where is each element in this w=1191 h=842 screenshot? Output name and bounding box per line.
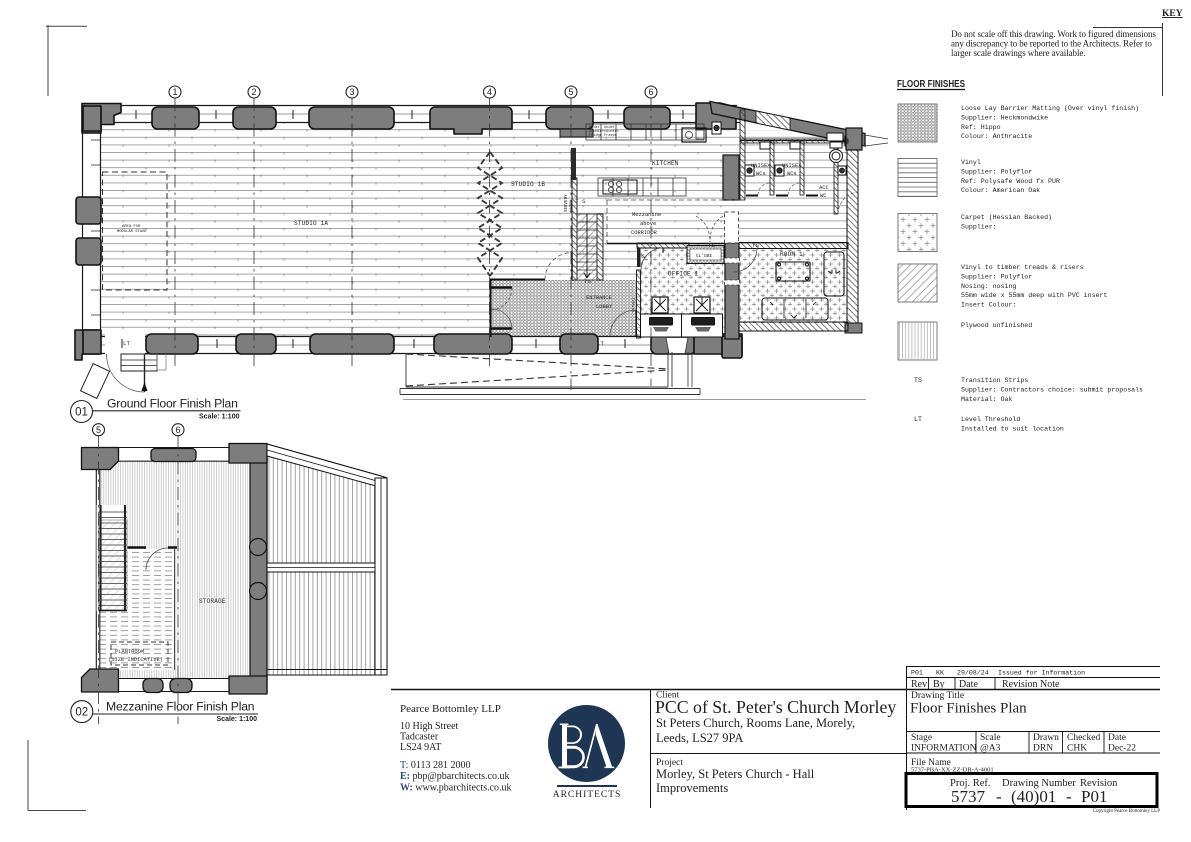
svg-text:5737: 5737 xyxy=(951,787,986,806)
svg-text:Supplier: Heckmondwike: Supplier: Heckmondwike xyxy=(961,114,1048,121)
svg-text:02: 02 xyxy=(75,707,88,719)
svg-text:Installed to suit location: Installed to suit location xyxy=(961,425,1064,432)
svg-text:Drawn: Drawn xyxy=(1033,733,1059,743)
svg-text:ENTRANCE: ENTRANCE xyxy=(586,295,612,301)
svg-text:Morley, St Peters Church - Hal: Morley, St Peters Church - Hall xyxy=(656,767,815,781)
svg-text:ACC: ACC xyxy=(819,185,829,191)
svg-text:Dec-22: Dec-22 xyxy=(1108,744,1136,754)
svg-text:WCs: WCs xyxy=(787,171,797,177)
svg-text:Rev: Rev xyxy=(911,679,927,690)
svg-text:Material: Oak: Material: Oak xyxy=(961,396,1012,403)
svg-text:5: 5 xyxy=(96,425,101,435)
svg-text:Supplier: Polyflor: Supplier: Polyflor xyxy=(961,273,1032,280)
svg-text:FLOOR FINISHES: FLOOR FINISHES xyxy=(897,78,965,90)
svg-text:STORAGE: STORAGE xyxy=(199,598,226,605)
svg-text:LS24 9AT: LS24 9AT xyxy=(400,742,441,753)
svg-text:CL'DBE: CL'DBE xyxy=(696,253,713,259)
svg-text:ARCHITECTS: ARCHITECTS xyxy=(553,790,622,800)
svg-text:Loose Lay Barrier Matting (Ove: Loose Lay Barrier Matting (Over vinyl fi… xyxy=(961,105,1139,112)
svg-text:TS: TS xyxy=(708,242,715,249)
svg-text:29/08/24: 29/08/24 xyxy=(957,670,989,677)
svg-text:UNISEX: UNISEX xyxy=(751,163,771,169)
svg-text:Revision Note: Revision Note xyxy=(1002,679,1060,690)
svg-text:WCs: WCs xyxy=(756,171,766,177)
svg-text:Scale: 1:100: Scale: 1:100 xyxy=(199,414,240,421)
svg-text:Checked: Checked xyxy=(1067,733,1100,743)
svg-text:LT: LT xyxy=(914,416,922,423)
svg-text:STUDIO 1A: STUDIO 1A xyxy=(294,220,328,227)
svg-text:STUDIO 1B: STUDIO 1B xyxy=(511,181,545,188)
svg-text:-: - xyxy=(996,787,1002,806)
svg-text:1: 1 xyxy=(172,87,177,97)
svg-text:-: - xyxy=(1066,787,1072,806)
svg-text:Supplier: Contractors choice:: Supplier: Contractors choice: submit pro… xyxy=(961,386,1143,393)
svg-text:Nosing: nosing: Nosing: nosing xyxy=(961,283,1016,290)
svg-text:Vinyl to timber treads & riser: Vinyl to timber treads & risers xyxy=(961,264,1084,271)
svg-text:TS: TS xyxy=(584,278,591,285)
svg-text:01: 01 xyxy=(75,407,88,419)
svg-text:10 High Street: 10 High Street xyxy=(400,721,459,732)
svg-text:UNISEX: UNISEX xyxy=(782,163,802,169)
svg-text:Date: Date xyxy=(959,679,978,690)
svg-text:ROOM 1: ROOM 1 xyxy=(780,251,803,258)
svg-text:T: 0113 281 2000: T: 0113 281 2000 xyxy=(400,760,471,771)
svg-text:55mm wide x 55mm deep with PVC: 55mm wide x 55mm deep with PVC insert xyxy=(961,292,1107,299)
svg-text:(40)01: (40)01 xyxy=(1011,787,1056,806)
svg-text:P01: P01 xyxy=(1081,787,1107,806)
svg-text:Scale: 1:100: Scale: 1:100 xyxy=(217,716,258,723)
svg-text:T S: T S xyxy=(575,198,586,205)
svg-text:Date: Date xyxy=(1108,733,1126,743)
svg-text:DRN: DRN xyxy=(1033,744,1053,754)
svg-text:Freeze: Freeze xyxy=(604,133,617,138)
svg-text:Colour: American Oak: Colour: American Oak xyxy=(961,187,1040,194)
svg-text:CHK: CHK xyxy=(1067,744,1087,754)
svg-text:PCC of St. Peter's Church Morl: PCC of St. Peter's Church Morley xyxy=(655,697,896,717)
svg-text:SERVERY: SERVERY xyxy=(565,194,569,212)
svg-text:larger scale drawings where av: larger scale drawings where available. xyxy=(951,48,1085,58)
svg-text:Improvements: Improvements xyxy=(656,781,728,795)
svg-text:Fridge: Fridge xyxy=(589,133,602,138)
svg-text:OFFICE 1: OFFICE 1 xyxy=(668,271,699,278)
svg-text:(SIZE INDICATIVE): (SIZE INDICATIVE) xyxy=(108,657,163,663)
svg-text:6: 6 xyxy=(648,87,653,97)
svg-text:5: 5 xyxy=(568,87,573,97)
svg-text:PLANTROOM: PLANTROOM xyxy=(115,649,144,655)
svg-text:CORRIDOR: CORRIDOR xyxy=(631,230,658,236)
svg-text:KK: KK xyxy=(936,670,944,677)
svg-text:TS: TS xyxy=(914,377,922,384)
svg-text:LOBBY: LOBBY xyxy=(596,304,613,310)
svg-text:P01: P01 xyxy=(911,670,923,677)
svg-text:Stage: Stage xyxy=(911,733,932,743)
svg-text:LT: LT xyxy=(597,340,604,347)
svg-text:WC: WC xyxy=(820,193,826,199)
svg-text:Copyright Pearce Bottomley LLP: Copyright Pearce Bottomley LLP xyxy=(1093,809,1161,814)
svg-text:Pearce Bottomley LLP: Pearce Bottomley LLP xyxy=(400,703,501,715)
svg-text:W: www.pbarchitects.co.uk: W: www.pbarchitects.co.uk xyxy=(400,783,512,794)
svg-text:KITCHEN: KITCHEN xyxy=(652,160,679,167)
svg-text:KEY: KEY xyxy=(1162,9,1183,19)
svg-text:Transition Strips: Transition Strips xyxy=(961,377,1028,384)
svg-text:Mezzanine: Mezzanine xyxy=(632,212,661,218)
svg-text:Supplier:: Supplier: xyxy=(961,223,997,230)
svg-text:By: By xyxy=(933,679,945,690)
svg-text:2: 2 xyxy=(251,87,256,97)
svg-text:MODULAR STAGE: MODULAR STAGE xyxy=(117,230,147,234)
svg-text:Carpet (Hessian Backed): Carpet (Hessian Backed) xyxy=(961,214,1052,221)
svg-text:Do not scale off this drawing.: Do not scale off this drawing. Work to f… xyxy=(951,29,1156,39)
svg-text:Vinyl: Vinyl xyxy=(961,159,981,166)
svg-text:6: 6 xyxy=(175,425,180,435)
svg-text:Colour: Anthracite: Colour: Anthracite xyxy=(961,133,1032,140)
svg-text:Ref: Polysafe Wood fx PUR: Ref: Polysafe Wood fx PUR xyxy=(961,178,1060,185)
svg-text:Floor Finishes Plan: Floor Finishes Plan xyxy=(910,701,1027,717)
svg-text:Tadcaster: Tadcaster xyxy=(400,732,439,743)
svg-text:LT: LT xyxy=(123,340,130,347)
svg-text:any discrepancy to be reported: any discrepancy to be reported to the Ar… xyxy=(951,39,1152,49)
svg-text:Plywood unfinished: Plywood unfinished xyxy=(961,322,1032,329)
svg-text:4: 4 xyxy=(487,87,492,97)
svg-text:above: above xyxy=(640,221,656,227)
svg-text:Scale: Scale xyxy=(980,733,1001,743)
svg-text:TS: TS xyxy=(752,242,759,249)
svg-text:Supplier: Polyflor: Supplier: Polyflor xyxy=(961,168,1032,175)
svg-text:Insert Colour:: Insert Colour: xyxy=(961,302,1016,309)
svg-text:Issued for Information: Issued for Information xyxy=(998,670,1085,677)
svg-text:Leeds, LS27 9PA: Leeds, LS27 9PA xyxy=(656,731,743,745)
svg-text:E: pbp@pbarchitects.co.uk: E: pbp@pbarchitects.co.uk xyxy=(400,771,509,782)
svg-text:TS: TS xyxy=(638,253,645,260)
svg-text:Drawing Title: Drawing Title xyxy=(911,691,964,701)
svg-text:Ground Floor Finish Plan: Ground Floor Finish Plan xyxy=(107,397,238,411)
svg-text:AREA FOR: AREA FOR xyxy=(122,225,141,229)
svg-text:3: 3 xyxy=(349,87,354,97)
svg-text:@A3: @A3 xyxy=(980,744,1001,754)
svg-text:Ref: Hippo: Ref: Hippo xyxy=(961,124,1001,131)
svg-text:St Peters Church, Rooms Lane,: St Peters Church, Rooms Lane, Morely, xyxy=(656,716,855,730)
svg-text:INFORMATION: INFORMATION xyxy=(911,744,977,754)
svg-text:Mezzanine Floor Finish Plan: Mezzanine Floor Finish Plan xyxy=(106,700,254,714)
svg-text:Level Threshold: Level Threshold xyxy=(961,416,1020,423)
